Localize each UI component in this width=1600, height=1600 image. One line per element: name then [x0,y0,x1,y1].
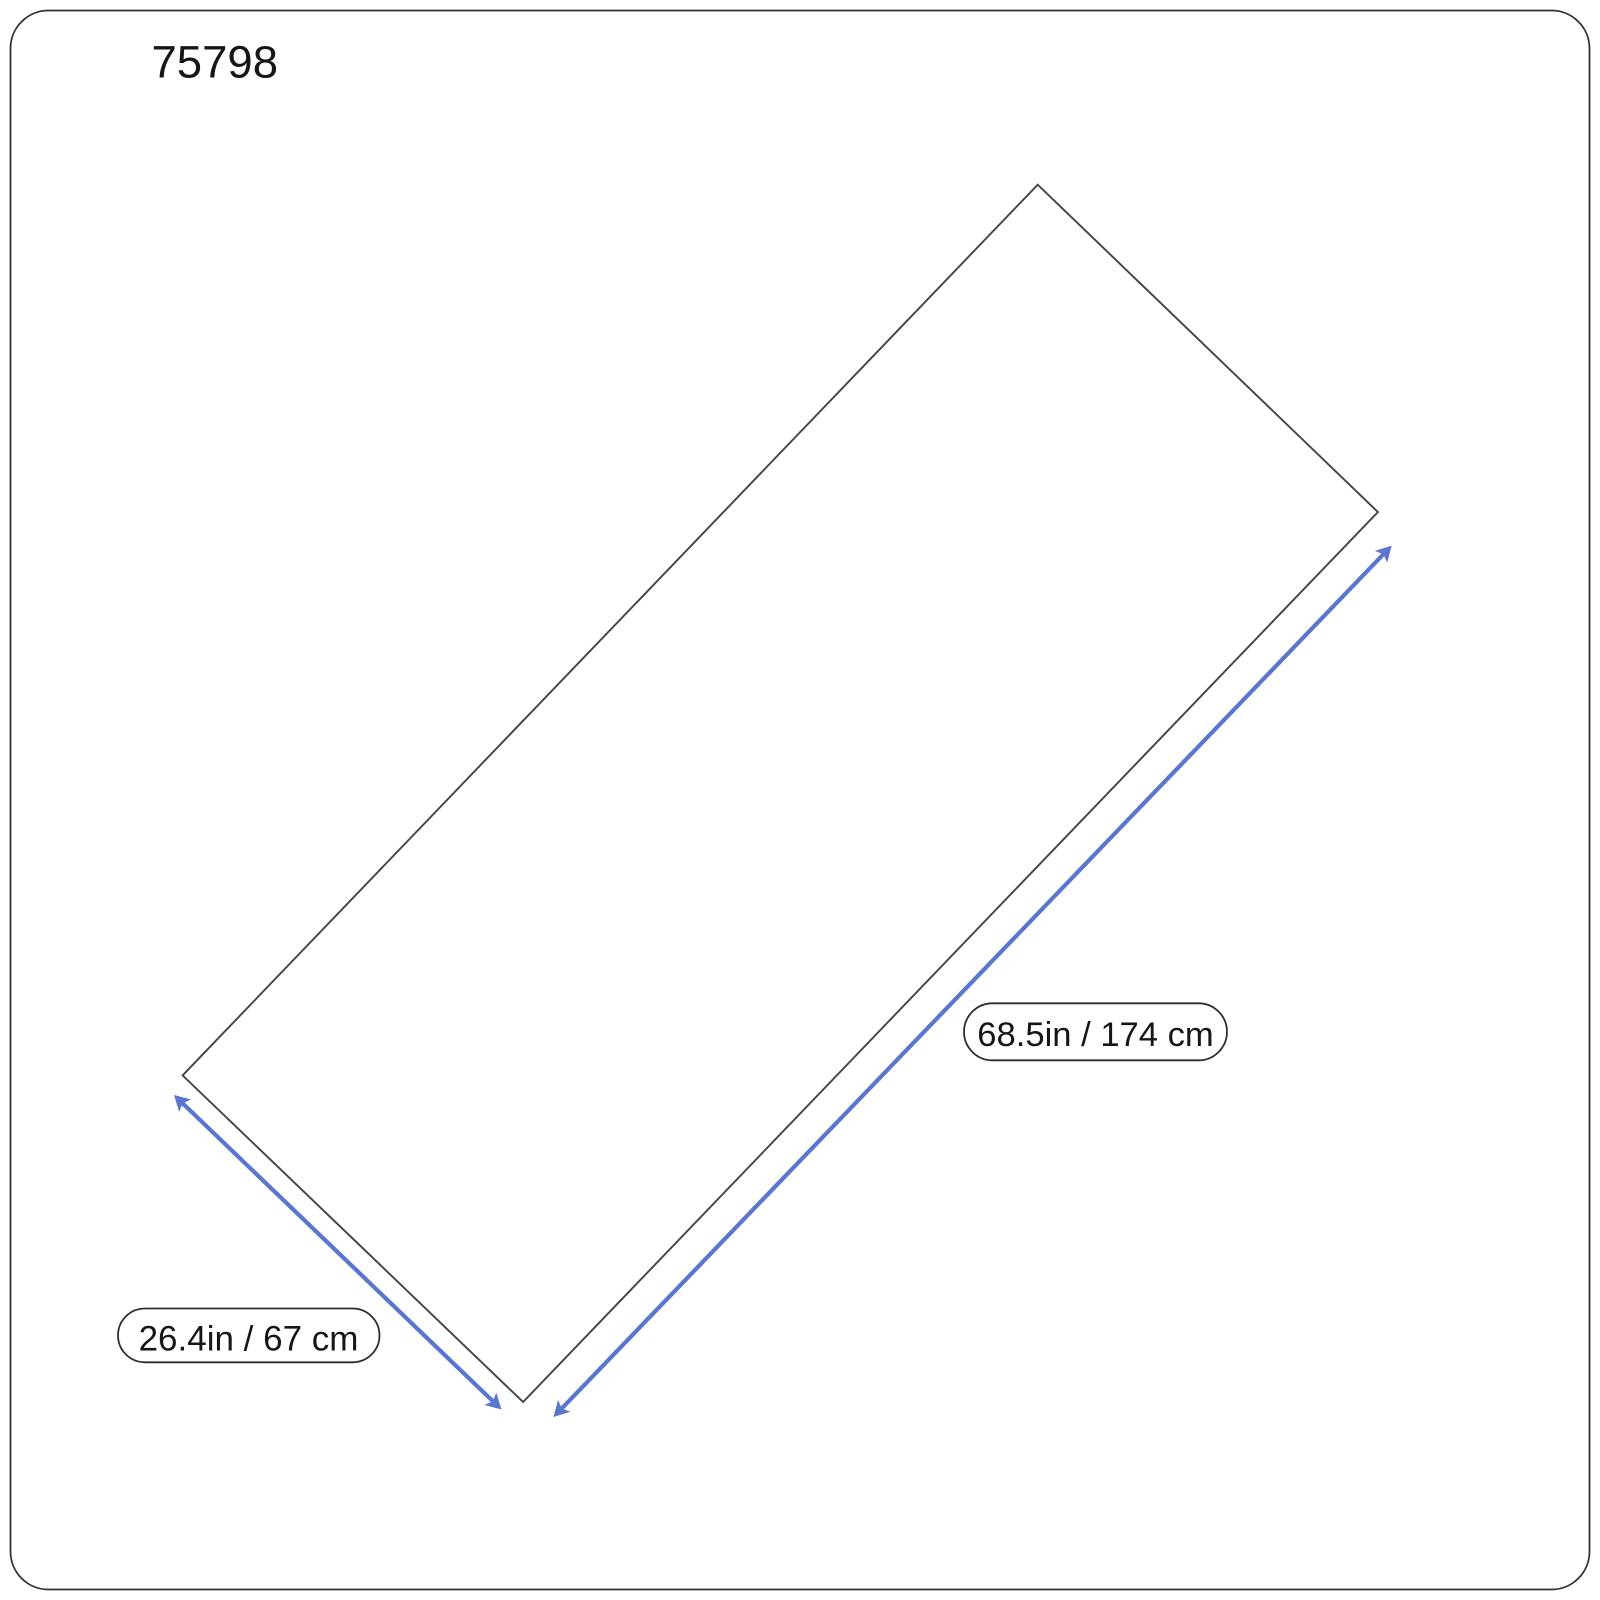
svg-text:68.5in / 174 cm: 68.5in / 174 cm [977,1016,1213,1054]
svg-text:75798: 75798 [152,36,279,87]
svg-text:26.4in / 67 cm: 26.4in / 67 cm [139,1320,359,1359]
